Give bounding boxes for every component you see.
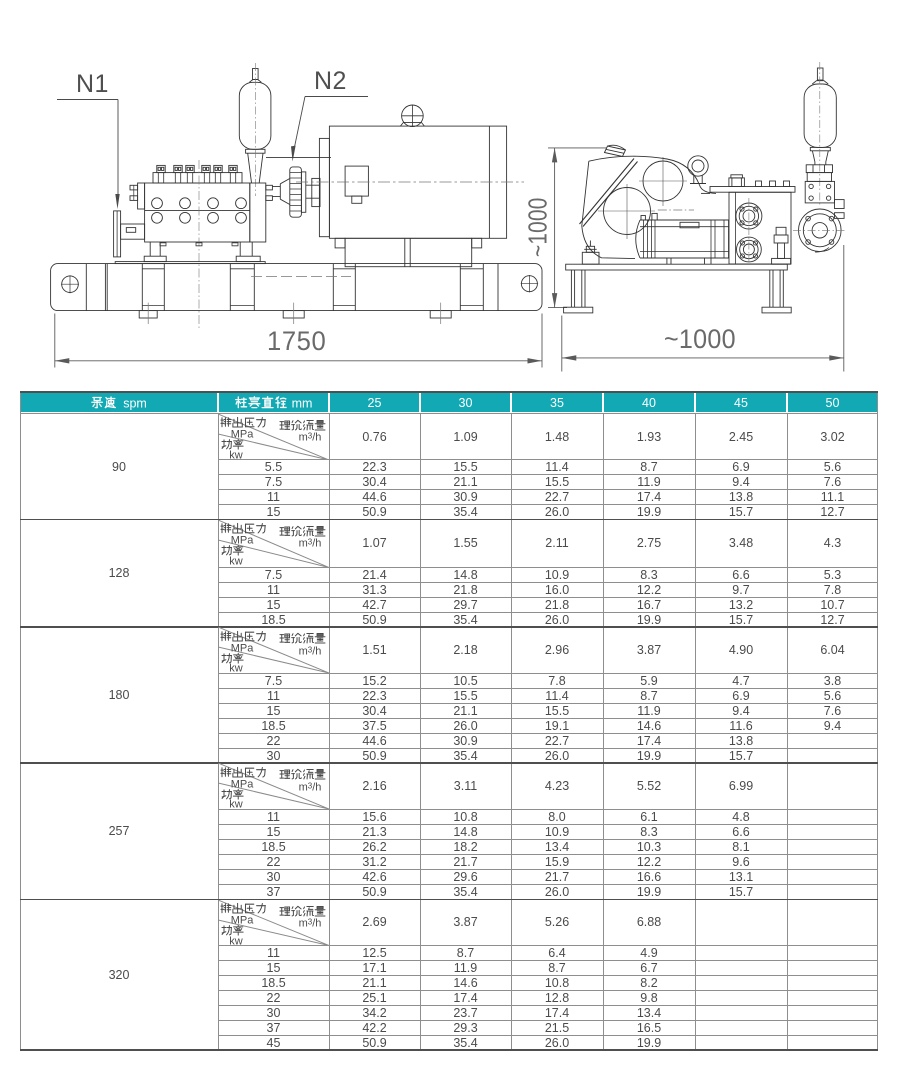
svg-text:~1000: ~1000	[664, 323, 736, 354]
svg-text:~1000: ~1000	[523, 197, 552, 257]
svg-text:N2: N2	[314, 67, 347, 95]
svg-text:1750: 1750	[267, 325, 326, 356]
svg-text:N1: N1	[76, 70, 109, 98]
